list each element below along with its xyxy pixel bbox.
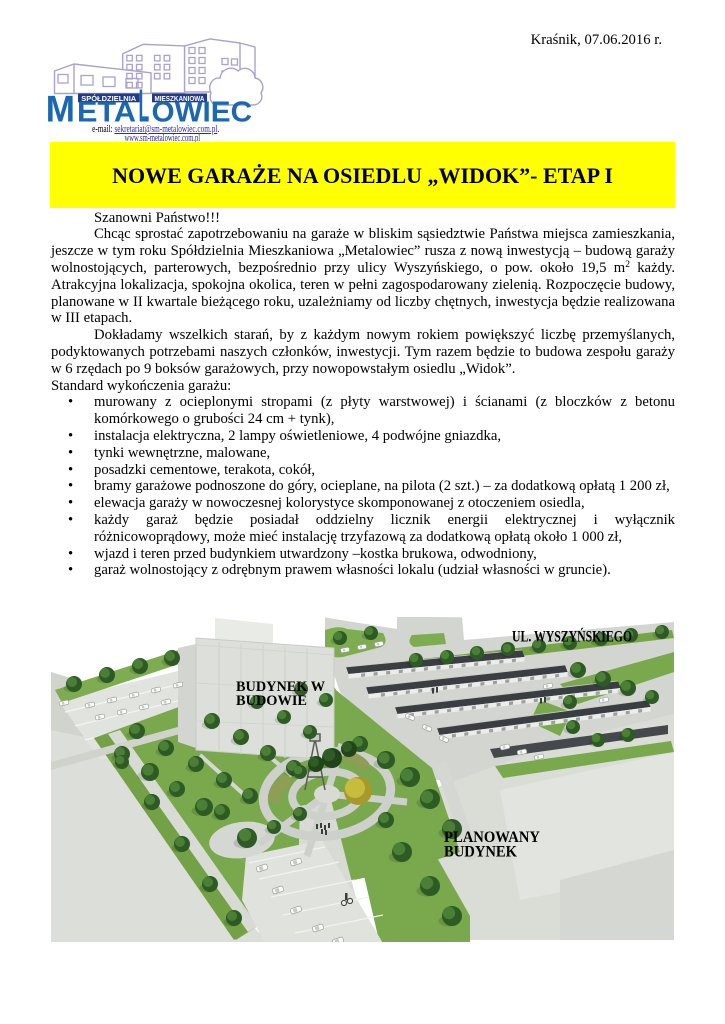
svg-text:OWIEC: OWIEC xyxy=(152,96,253,125)
svg-text:BUDYNEK: BUDYNEK xyxy=(444,844,517,861)
svg-text:L: L xyxy=(139,79,150,125)
svg-text:M: M xyxy=(46,88,75,125)
svg-text:ETA: ETA xyxy=(77,96,136,125)
svg-text:BUDOWIE: BUDOWIE xyxy=(236,693,307,709)
svg-text:UL. WYSZYŃSKIEGO: UL. WYSZYŃSKIEGO xyxy=(512,629,632,646)
